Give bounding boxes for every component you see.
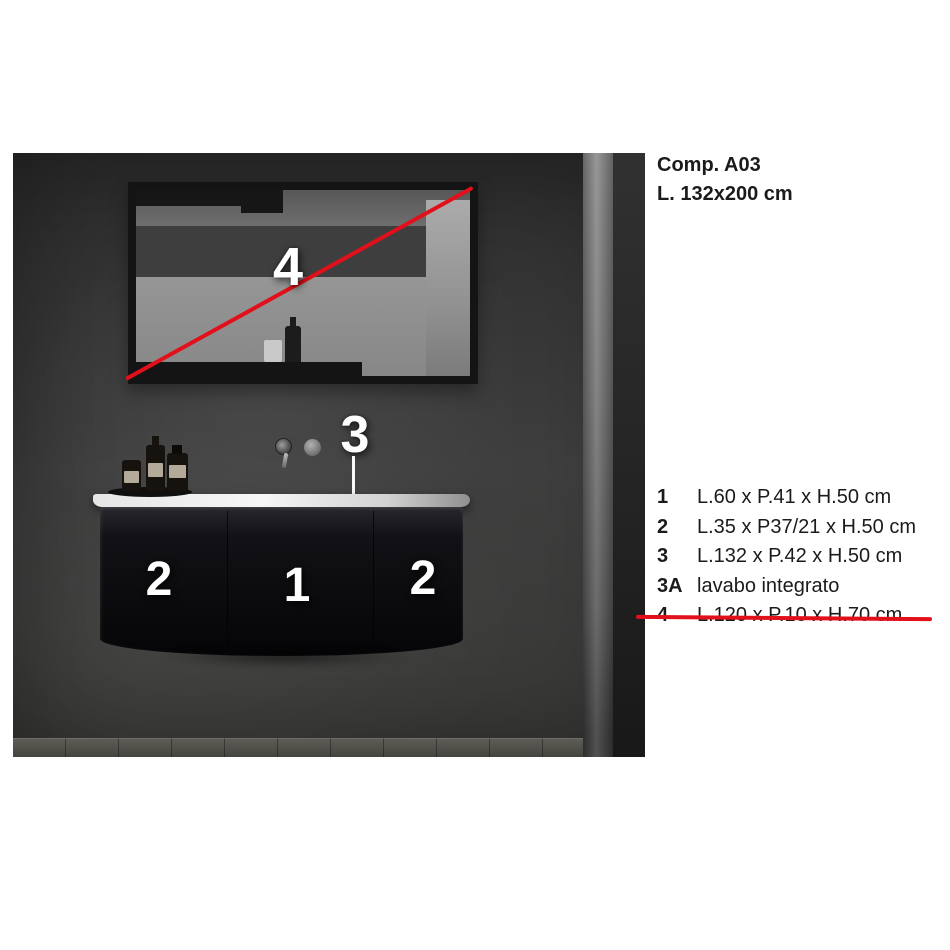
reflection-cup: [264, 340, 282, 362]
composition-size: L. 132x200 cm: [657, 180, 793, 209]
reflection-bottle: [285, 326, 301, 362]
spec-header: Comp. A03 L. 132x200 cm: [657, 151, 793, 209]
spec-row-text: lavabo integrato: [697, 572, 839, 602]
spec-row-text: L.35 x P37/21 x H.50 cm: [697, 513, 916, 543]
bottle-label: [124, 471, 139, 483]
callout-pointer-line: [352, 456, 355, 499]
callout-number-door-center: 1: [267, 562, 327, 610]
catalog-page: 4 3 2 1 2 Comp. A03 L. 132x200 cm 1 L.60…: [0, 0, 950, 950]
reflection-top-notch-step: [241, 190, 283, 213]
door-seam: [227, 511, 228, 645]
faucet-lever-icon: [275, 438, 292, 455]
product-photo: 4 3 2 1 2: [13, 153, 645, 757]
reflection-shelf: [136, 362, 362, 376]
callout-number-basin: 3: [325, 409, 385, 461]
spec-row-number: 3: [657, 542, 697, 572]
spec-row-number: 3A: [657, 572, 697, 602]
floor: [13, 738, 591, 757]
spec-row-text: L.60 x P.41 x H.50 cm: [697, 483, 891, 513]
spec-row-number: 1: [657, 483, 697, 513]
spec-row: 2 L.35 x P37/21 x H.50 cm: [657, 513, 916, 543]
callout-number-mirror: 4: [253, 240, 323, 294]
composition-title: Comp. A03: [657, 151, 793, 180]
spec-list: 1 L.60 x P.41 x H.50 cm 2 L.35 x P37/21 …: [657, 483, 916, 631]
spec-row: 3A lavabo integrato: [657, 572, 916, 602]
cabinet-shadow: [108, 649, 458, 675]
reflection-top-notch: [136, 190, 241, 206]
bottle-label: [169, 465, 186, 478]
spec-row: 1 L.60 x P.41 x H.50 cm: [657, 483, 916, 513]
spec-row-number: 2: [657, 513, 697, 543]
door-seam: [373, 511, 374, 645]
reflection-side-panel: [426, 200, 470, 376]
reflection-bottle-neck: [290, 317, 296, 327]
faucet-spout-knob: [304, 439, 321, 456]
spec-row: 3 L.132 x P.42 x H.50 cm: [657, 542, 916, 572]
callout-number-door-left: 2: [129, 556, 189, 604]
bottle-label: [148, 463, 163, 477]
bottle-neck: [152, 436, 159, 446]
wall-corner-strip: [583, 153, 613, 757]
callout-number-door-right: 2: [393, 555, 453, 603]
bottle-cap: [172, 445, 182, 454]
right-dark-strip: [613, 153, 645, 757]
spec-row-text: L.132 x P.42 x H.50 cm: [697, 542, 902, 572]
